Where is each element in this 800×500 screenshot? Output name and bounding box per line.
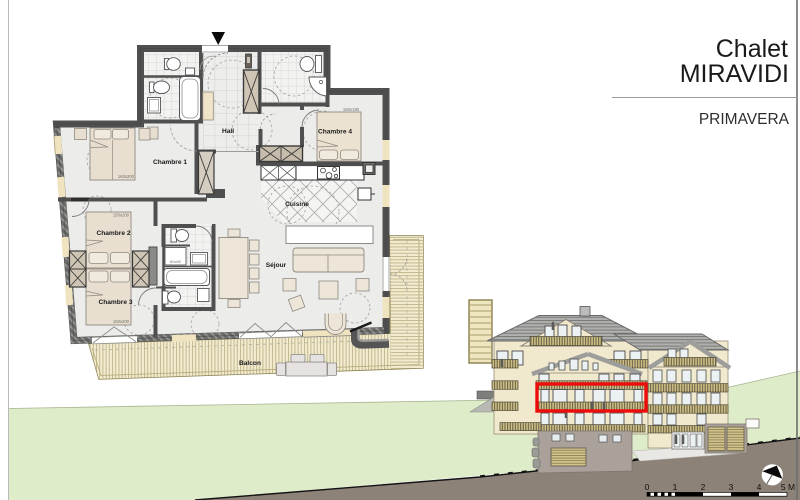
svg-text:150x200: 150x200 — [113, 319, 130, 324]
svg-text:PRIMAVERA: PRIMAVERA — [699, 111, 790, 128]
svg-text:Chambre 2: Chambre 2 — [96, 230, 130, 237]
svg-text:Séjour: Séjour — [266, 262, 287, 269]
svg-text:Hall: Hall — [222, 128, 234, 135]
svg-text:3: 3 — [729, 482, 734, 492]
svg-text:0: 0 — [645, 482, 650, 492]
svg-text:150x190: 150x190 — [343, 107, 360, 112]
svg-text:Chambre 4: Chambre 4 — [318, 129, 352, 136]
svg-text:160x200: 160x200 — [118, 174, 135, 179]
svg-text:5 M: 5 M — [781, 482, 795, 492]
svg-text:4: 4 — [757, 482, 762, 492]
svg-text:1: 1 — [673, 482, 678, 492]
svg-text:2: 2 — [701, 482, 706, 492]
svg-text:150x200: 150x200 — [113, 213, 130, 218]
svg-text:MIRAVIDI: MIRAVIDI — [680, 60, 789, 88]
svg-text:80x80: 80x80 — [170, 259, 182, 264]
svg-text:Chambre 1: Chambre 1 — [153, 159, 187, 166]
svg-text:Chalet: Chalet — [716, 35, 788, 63]
svg-text:Cuisine: Cuisine — [285, 201, 309, 208]
svg-text:Balcon: Balcon — [239, 360, 261, 367]
svg-text:Chambre 3: Chambre 3 — [98, 299, 132, 306]
